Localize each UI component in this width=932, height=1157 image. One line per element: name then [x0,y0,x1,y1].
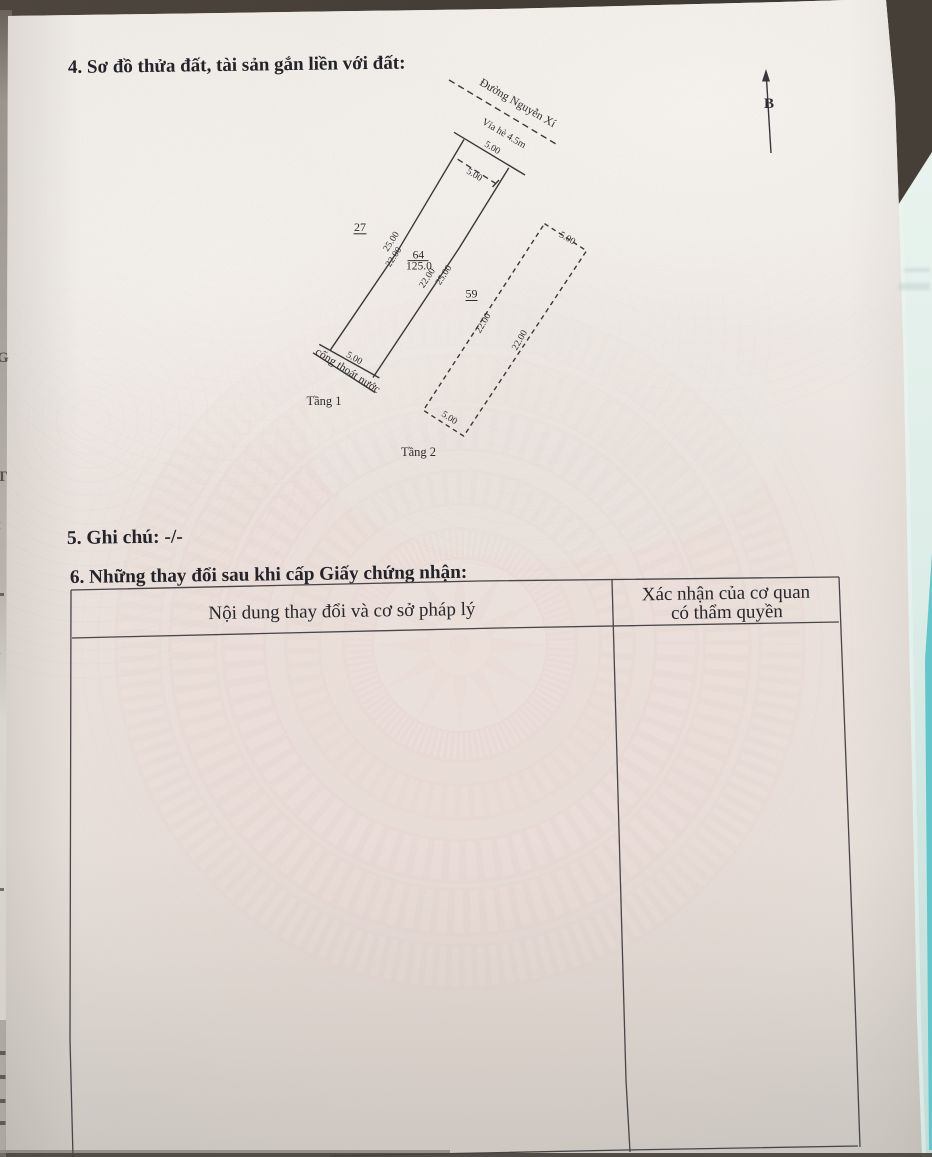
svg-text:4. Sơ đồ thửa đất, tài sản gắn: 4. Sơ đồ thửa đất, tài sản gắn liền với … [68,53,406,78]
svg-text:ỉ: ỉ [0,520,1,532]
svg-text:i: i [0,645,1,657]
svg-text:5. Ghi chú: -/-: 5. Ghi chú: -/- [67,526,183,549]
svg-text:G: G [0,350,9,366]
svg-text:có thẩm quyền: có thẩm quyền [671,601,784,624]
svg-text:T: T [0,469,7,485]
svg-text:Nội dung thay đổi và cơ sở phá: Nội dung thay đổi và cơ sở pháp lý [208,599,476,624]
svg-text:Tầng 1: Tầng 1 [306,394,341,408]
svg-text:59: 59 [466,287,478,301]
svg-text:Tầng 2: Tầng 2 [401,445,436,459]
svg-text:B: B [764,96,774,112]
svg-text:27: 27 [354,220,366,234]
